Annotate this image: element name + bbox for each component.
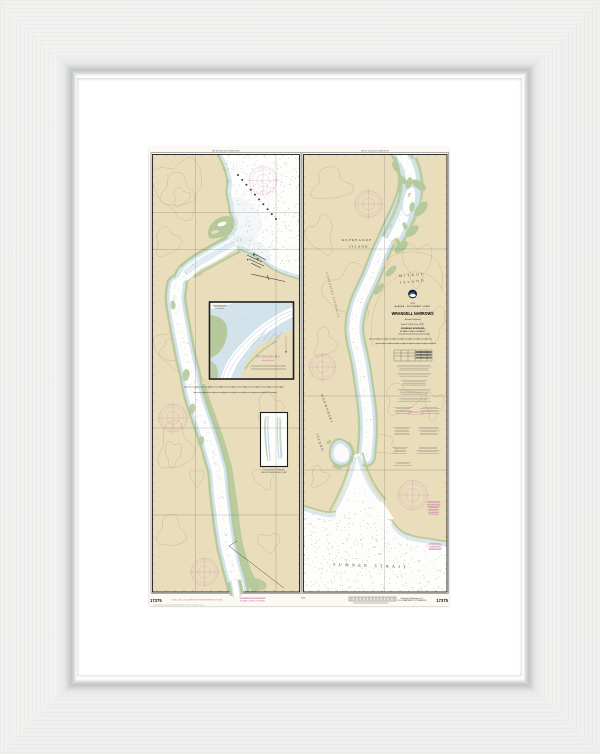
svg-text:WRANGELL NARROWS: WRANGELL NARROWS <box>392 311 434 316</box>
svg-text:132°57' Joins Chart 17360 56: 132°57' Joins Chart 17360 56°49' <box>361 149 390 152</box>
svg-text:Mercator Projection: Mercator Projection <box>405 318 421 321</box>
svg-text:PETERSBURG: PETERSBURG <box>256 355 281 359</box>
svg-text:AT MEAN LOWER LOW WATER: AT MEAN LOWER LOW WATER <box>400 330 425 333</box>
svg-text:17375: 17375 <box>410 303 415 305</box>
svg-text:132°58' Joins Chart 17360 56: 132°58' Joins Chart 17360 56°52' <box>212 149 241 152</box>
svg-text:ISLAND: ISLAND <box>349 245 368 249</box>
svg-text:17375: 17375 <box>150 598 162 603</box>
svg-text:SOUNDINGS IN FATHOMS: SOUNDINGS IN FATHOMS <box>401 327 425 330</box>
svg-text:AT MEAN LOWER LOW WATER: AT MEAN LOWER LOW WATER <box>240 600 265 603</box>
svg-text:SOUNDINGS IN FATHOMS: SOUNDINGS IN FATHOMS <box>240 597 266 600</box>
svg-text:KUPREANOF: KUPREANOF <box>342 238 373 242</box>
svg-text:ALASKA – SOUTHEAST COAST: ALASKA – SOUTHEAST COAST <box>395 305 431 308</box>
svg-text:U.S. DEPARTMENT OF COMMERCE: U.S. DEPARTMENT OF COMMERCE <box>398 599 427 602</box>
svg-text:Scale 1:22,097 at Lat. 56°35': Scale 1:22,097 at Lat. 56°35' <box>401 323 425 326</box>
svg-text:8th Ed., Mar. 2013 DISPOSE OF: 8th Ed., Mar. 2013 DISPOSE OF SUPERSEDED… <box>172 598 223 601</box>
svg-text:17375: 17375 <box>436 598 448 603</box>
